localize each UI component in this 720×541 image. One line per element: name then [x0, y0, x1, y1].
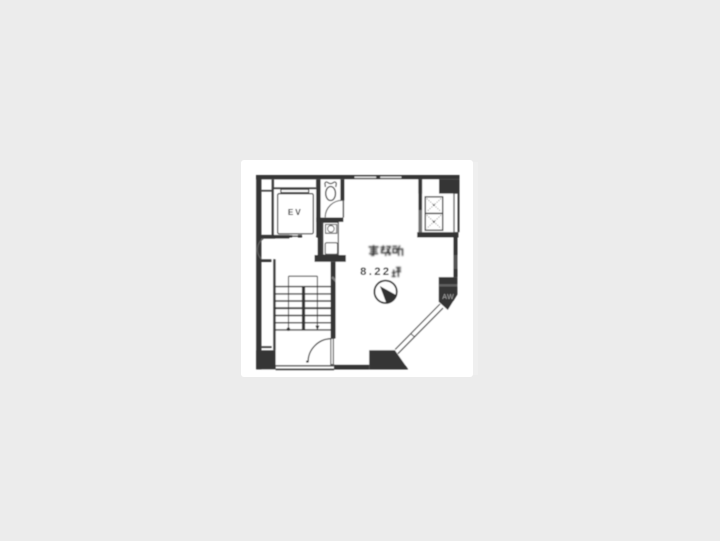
- svg-text:EV: EV: [288, 208, 303, 217]
- svg-text:8.22: 8.22: [360, 266, 391, 278]
- svg-text:AW: AW: [442, 294, 454, 301]
